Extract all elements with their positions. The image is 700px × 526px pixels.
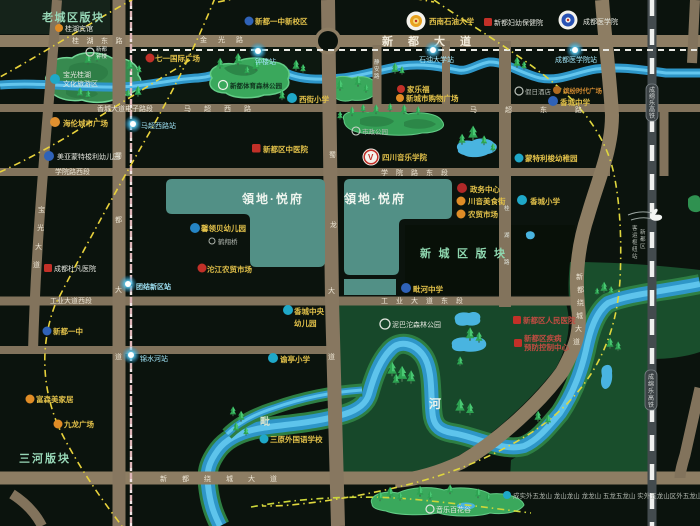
svg-text:大: 大 <box>575 324 582 333</box>
svg-text:V: V <box>368 153 374 162</box>
svg-text:农贸市场: 农贸市场 <box>467 209 498 219</box>
svg-text:毗: 毗 <box>260 415 270 428</box>
svg-text:城: 城 <box>576 312 583 320</box>
svg-text:馨领贝幼儿园: 馨领贝幼儿园 <box>200 223 246 233</box>
svg-text:钟楼: 钟楼 <box>96 52 108 60</box>
svg-text:桂湖东路: 桂湖东路 <box>72 36 130 45</box>
svg-text:金光路: 金光路 <box>200 35 254 44</box>
svg-text:老城区版块: 老城区版块 <box>41 10 105 24</box>
svg-text:道: 道 <box>573 337 580 346</box>
svg-text:音乐百花谷: 音乐百花谷 <box>436 505 471 514</box>
svg-text:市政公园: 市政公园 <box>362 127 388 136</box>
svg-text:毗河中学: 毗河中学 <box>413 284 443 294</box>
svg-text:新: 新 <box>576 272 583 281</box>
svg-text:新城市购物广场: 新城市购物广场 <box>406 93 459 103</box>
svg-text:道: 道 <box>33 260 40 269</box>
svg-text:九龙广场: 九龙广场 <box>63 419 94 429</box>
svg-text:道: 道 <box>328 352 335 361</box>
svg-text:学院路西段: 学院路西段 <box>55 167 90 176</box>
svg-text:光: 光 <box>37 223 44 232</box>
svg-text:政务中心: 政务中心 <box>470 184 500 194</box>
svg-text:香城小学: 香城小学 <box>529 196 560 206</box>
svg-text:新都绕城大道: 新都绕城大道 <box>160 474 292 483</box>
svg-text:成绵乐高铁: 成绵乐高铁 <box>648 373 654 409</box>
svg-text:都: 都 <box>577 286 584 294</box>
svg-text:成实外五龙山 龙山龙山 龙龙山 五龙五龙山 实外五龙山区外五: 成实外五龙山 龙山龙山 龙龙山 五龙五龙山 实外五龙山区外五龙山 <box>513 491 700 500</box>
svg-text:成都医学院: 成都医学院 <box>583 17 618 26</box>
svg-text:新都一中新校区: 新都一中新校区 <box>255 16 308 26</box>
svg-text:大: 大 <box>328 286 335 295</box>
svg-text:香城中学: 香城中学 <box>559 97 590 107</box>
svg-text:鹤翔桥: 鹤翔桥 <box>218 237 238 246</box>
svg-text:家乐福: 家乐福 <box>407 84 430 94</box>
svg-text:富森美家居: 富森美家居 <box>36 394 74 404</box>
svg-text:香城大道电子路段: 香城大道电子路段 <box>97 104 153 113</box>
svg-text:新都区疾病: 新都区疾病 <box>524 333 562 343</box>
svg-text:三河版块: 三河版块 <box>19 451 71 465</box>
svg-text:海伦城市广场: 海伦城市广场 <box>63 118 108 128</box>
svg-text:桂湖宾馆: 桂湖宾馆 <box>65 24 93 33</box>
svg-text:川音美食街: 川音美食街 <box>467 196 506 206</box>
svg-text:静: 静 <box>374 58 380 66</box>
svg-text:成都医学院站: 成都医学院站 <box>555 55 597 64</box>
svg-text:成都杜凡医院: 成都杜凡医院 <box>54 264 96 273</box>
svg-text:新都: 新都 <box>96 45 108 53</box>
svg-text:缤纷时代广场: 缤纷时代广场 <box>563 86 603 95</box>
svg-text:工业大道西段: 工业大道西段 <box>50 296 92 305</box>
svg-text:工业大道东段: 工业大道东段 <box>381 296 471 305</box>
svg-text:湖: 湖 <box>504 231 510 239</box>
svg-text:大: 大 <box>35 242 42 251</box>
svg-text:马超西路站: 马超西路站 <box>141 121 176 130</box>
svg-text:钟楼站: 钟楼站 <box>255 57 276 66</box>
svg-text:团结新区站: 团结新区站 <box>136 282 171 291</box>
svg-text:蜀: 蜀 <box>329 151 336 159</box>
svg-text:幼儿园: 幼儿园 <box>294 318 317 328</box>
svg-text:绕: 绕 <box>577 298 584 307</box>
svg-text:新都体育森林公园: 新都体育森林公园 <box>230 81 283 90</box>
svg-text:谕亭小学: 谕亭小学 <box>280 354 310 364</box>
svg-text:客运枢纽站: 客运枢纽站 <box>632 224 638 260</box>
svg-text:新都妇幼保健院: 新都妇幼保健院 <box>494 18 543 27</box>
svg-text:沱江农贸市场: 沱江农贸市场 <box>207 264 252 274</box>
svg-text:安: 安 <box>374 65 380 73</box>
svg-text:成绵乐高铁: 成绵乐高铁 <box>649 86 655 120</box>
svg-text:七一国际广场: 七一国际广场 <box>155 53 200 63</box>
svg-text:新都一中: 新都一中 <box>53 326 83 336</box>
svg-text:西街小学: 西街小学 <box>299 94 329 104</box>
svg-text:蒙特利梭幼稚园: 蒙特利梭幼稚园 <box>525 153 578 163</box>
svg-text:三原外国语学校: 三原外国语学校 <box>270 434 323 444</box>
svg-text:路: 路 <box>374 72 380 80</box>
svg-text:预防控制中心: 预防控制中心 <box>524 342 569 352</box>
svg-text:假日酒店: 假日酒店 <box>525 87 552 96</box>
svg-text:道: 道 <box>115 352 122 361</box>
svg-text:龙: 龙 <box>330 220 337 229</box>
svg-text:西南石油大学: 西南石油大学 <box>429 16 474 26</box>
svg-text:石油大学站: 石油大学站 <box>419 55 454 64</box>
svg-text:都: 都 <box>115 216 122 224</box>
svg-text:学院路东段: 学院路东段 <box>381 168 456 177</box>
svg-text:马超西路: 马超西路 <box>184 104 264 113</box>
svg-text:锦水河站: 锦水河站 <box>140 354 168 363</box>
svg-text:四川音乐学院: 四川音乐学院 <box>382 152 427 162</box>
svg-text:宝: 宝 <box>38 205 45 214</box>
svg-text:領地·悦府: 領地·悦府 <box>343 191 406 206</box>
svg-text:泥巴沱森林公园: 泥巴沱森林公园 <box>392 320 441 329</box>
svg-text:新都区中医院: 新都区中医院 <box>263 144 308 154</box>
svg-text:文化旅游区: 文化旅游区 <box>63 79 98 88</box>
svg-text:新都区: 新都区 <box>640 228 646 250</box>
svg-text:領地·悦府: 領地·悦府 <box>241 191 304 206</box>
svg-text:新城区版块: 新城区版块 <box>420 246 513 260</box>
svg-text:宝光桂湖: 宝光桂湖 <box>63 70 91 79</box>
svg-text:河: 河 <box>428 396 441 411</box>
svg-text:新都区人民医院: 新都区人民医院 <box>523 315 576 325</box>
svg-text:美亚蒙特梭利幼儿园: 美亚蒙特梭利幼儿园 <box>57 152 120 161</box>
svg-text:香城中央: 香城中央 <box>293 306 324 316</box>
